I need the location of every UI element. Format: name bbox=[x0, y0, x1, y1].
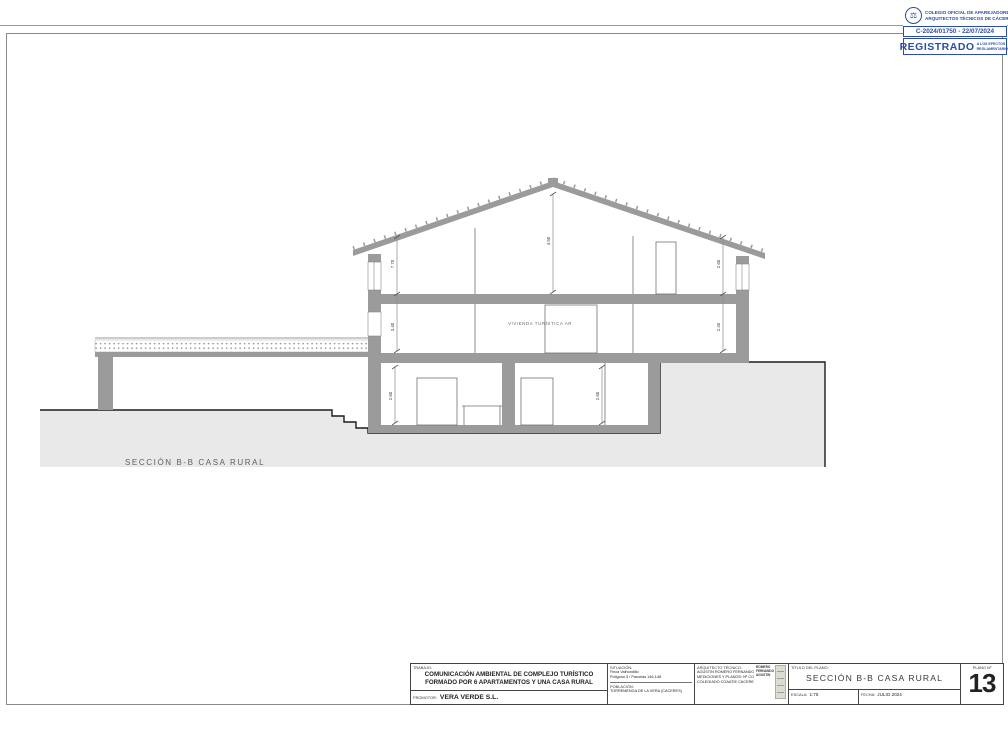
basement-wall-right bbox=[648, 362, 660, 433]
colegio-logo-icon: ⚖ bbox=[905, 7, 922, 24]
main-door bbox=[545, 305, 597, 353]
plan-sheet: 7.70 3.40 4.50 2.60 2.45 2.60 2.60 VIVIE… bbox=[0, 0, 1008, 736]
roof-ticks-left bbox=[353, 179, 553, 248]
registered-note: A LOS EFECTOS REGLAMENTARIOS bbox=[977, 42, 1008, 51]
roof-ticks-right bbox=[553, 179, 765, 251]
basement-door-right bbox=[521, 378, 553, 425]
promotor-value: VERA VERDE S.L. bbox=[440, 694, 498, 701]
attic-floor-slab bbox=[368, 294, 749, 304]
digital-signature-box bbox=[775, 665, 786, 699]
titulo-value: SECCIÓN B-B CASA RURAL bbox=[791, 673, 958, 683]
title-block-promotor-cell: PROMOTOR: VERA VERDE S.L. bbox=[411, 690, 608, 704]
registered-note-line2: REGLAMENTARIOS bbox=[977, 47, 1008, 51]
dim-ridge: 4.50 bbox=[546, 236, 551, 245]
situacion-line2: Polígono 3 / Parcelas 146-148 bbox=[610, 675, 692, 680]
arquitecto-line3: COLEGIADO COAATIE CÁCERES bbox=[697, 680, 754, 685]
signature-name: ROMERO FERNANDO AGUSTIN bbox=[756, 665, 774, 703]
dim-right-upper: 2.60 bbox=[716, 259, 721, 268]
promotor-label: PROMOTOR: bbox=[413, 695, 437, 700]
stamp-org-line1: COLEGIO OFICIAL DE APAREJADORES bbox=[925, 10, 1008, 16]
registered-label: REGISTRADO bbox=[900, 41, 975, 53]
trabajo-line2: FORMADO POR 6 APARTAMENTOS Y UNA CASA RU… bbox=[413, 679, 605, 687]
title-block-escala-cell: ESCALA: 1:75 bbox=[789, 689, 859, 704]
escala-label: ESCALA: bbox=[791, 692, 807, 697]
dim-basement-right: 2.60 bbox=[595, 391, 600, 400]
basement-counter bbox=[462, 406, 502, 425]
signature-name-line3: AGUSTIN bbox=[756, 673, 774, 677]
section-label: SECCIÓN B-B CASA RURAL bbox=[125, 458, 265, 467]
dim-left-upper: 7.70 bbox=[390, 259, 395, 268]
attic-door bbox=[656, 242, 676, 294]
section-drawing: 7.70 3.40 4.50 2.60 2.45 2.60 2.60 VIVIE… bbox=[0, 0, 1008, 736]
stamp-org-line2: ARQUITECTOS TÉCNICOS DE CÁCERES bbox=[925, 16, 1008, 22]
trabajo-label: TRABAJO: bbox=[413, 665, 605, 670]
stamp-org-name: COLEGIO OFICIAL DE APAREJADORES ARQUITEC… bbox=[925, 10, 1008, 21]
title-block-plano-cell: PLANO Nº 13 bbox=[961, 664, 1003, 704]
basement-wall-left bbox=[368, 363, 381, 433]
dim-right-lower: 2.45 bbox=[716, 322, 721, 331]
title-block-arquitecto-cell: ARQUITECTO TÉCNICO: AGUSTÍN ROMERO FERNA… bbox=[695, 664, 789, 704]
poblacion-value: TORREMENGA DE LA VERA (CÁCERES) bbox=[610, 689, 692, 694]
porch-roof-hatch bbox=[95, 340, 372, 352]
stamp-registered-box: REGISTRADO A LOS EFECTOS REGLAMENTARIOS bbox=[903, 38, 1007, 55]
title-block-titulo-cell: TÍTULO DEL PLANO: SECCIÓN B-B CASA RURAL bbox=[789, 664, 961, 689]
attic-window-right bbox=[736, 264, 749, 290]
basement-floor-slab bbox=[368, 425, 660, 433]
fecha-value: JULIO 2024 bbox=[877, 692, 902, 697]
dim-left-lower: 3.40 bbox=[390, 322, 395, 331]
dim-basement-left: 2.60 bbox=[388, 391, 393, 400]
escala-value: 1:75 bbox=[809, 692, 818, 697]
fecha-label: FECHA: bbox=[861, 692, 875, 697]
main-floor-slab bbox=[368, 353, 749, 363]
roof bbox=[353, 181, 765, 259]
title-block-fecha-cell: FECHA: JULIO 2024 bbox=[859, 689, 961, 704]
stamp-org: ⚖ COLEGIO OFICIAL DE APAREJADORES ARQUIT… bbox=[903, 6, 1007, 26]
registration-stamp: ⚖ COLEGIO OFICIAL DE APAREJADORES ARQUIT… bbox=[903, 6, 1007, 55]
trabajo-line1: COMUNICACIÓN AMBIENTAL DE COMPLEJO TURÍS… bbox=[413, 671, 605, 679]
stamp-registration-number: C-2024/01750 - 22/07/2024 bbox=[903, 26, 1007, 37]
porch-roof-fascia bbox=[95, 352, 372, 357]
title-block-trabajo-cell: TRABAJO: COMUNICACIÓN AMBIENTAL DE COMPL… bbox=[411, 664, 608, 690]
titulo-label: TÍTULO DEL PLANO: bbox=[791, 665, 958, 670]
registered-note-line1: A LOS EFECTOS bbox=[977, 42, 1008, 46]
attic-window-left bbox=[368, 262, 381, 290]
title-block-situacion-cell: SITUACIÓN: Finca Valhondillo Polígono 3 … bbox=[608, 664, 695, 704]
main-window-left bbox=[368, 312, 381, 336]
basement-wall-mid bbox=[502, 363, 515, 425]
room-label: VIVIENDA TURÍSTICA AR bbox=[508, 321, 572, 326]
porch-column bbox=[98, 357, 113, 410]
basement-door-left bbox=[417, 378, 457, 425]
title-block: TRABAJO: COMUNICACIÓN AMBIENTAL DE COMPL… bbox=[410, 663, 1004, 705]
ridge-cap bbox=[548, 178, 558, 184]
plano-number: 13 bbox=[963, 670, 1001, 697]
situacion-divider bbox=[610, 682, 692, 683]
